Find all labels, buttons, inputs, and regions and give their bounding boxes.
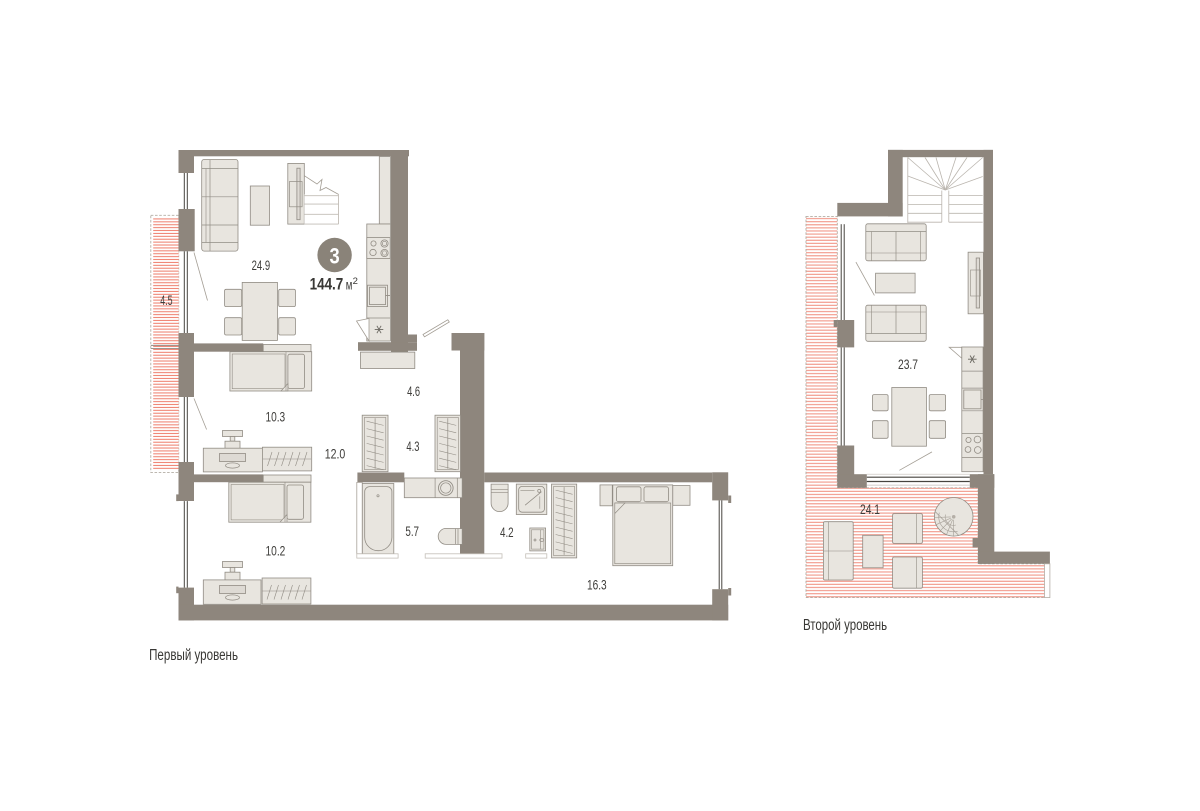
svg-text:4.6: 4.6 <box>407 383 420 399</box>
svg-text:24.1: 24.1 <box>860 501 880 517</box>
svg-text:5.7: 5.7 <box>405 523 419 539</box>
svg-text:4.5: 4.5 <box>160 292 172 308</box>
svg-text:12.0: 12.0 <box>325 445 346 461</box>
svg-text:16.3: 16.3 <box>587 576 607 592</box>
svg-text:144.7: 144.7 <box>310 275 344 293</box>
svg-text:2: 2 <box>353 276 358 287</box>
svg-text:10.2: 10.2 <box>266 543 286 559</box>
svg-text:23.7: 23.7 <box>898 356 918 372</box>
svg-text:24.9: 24.9 <box>252 257 271 273</box>
svg-text:Первый уровень: Первый уровень <box>149 647 238 664</box>
svg-text:Второй уровень: Второй уровень <box>803 617 887 634</box>
svg-text:10.3: 10.3 <box>265 409 285 425</box>
svg-text:м: м <box>346 277 353 292</box>
svg-text:3: 3 <box>330 243 340 268</box>
svg-text:4.3: 4.3 <box>406 438 419 454</box>
svg-text:4.2: 4.2 <box>500 524 514 540</box>
